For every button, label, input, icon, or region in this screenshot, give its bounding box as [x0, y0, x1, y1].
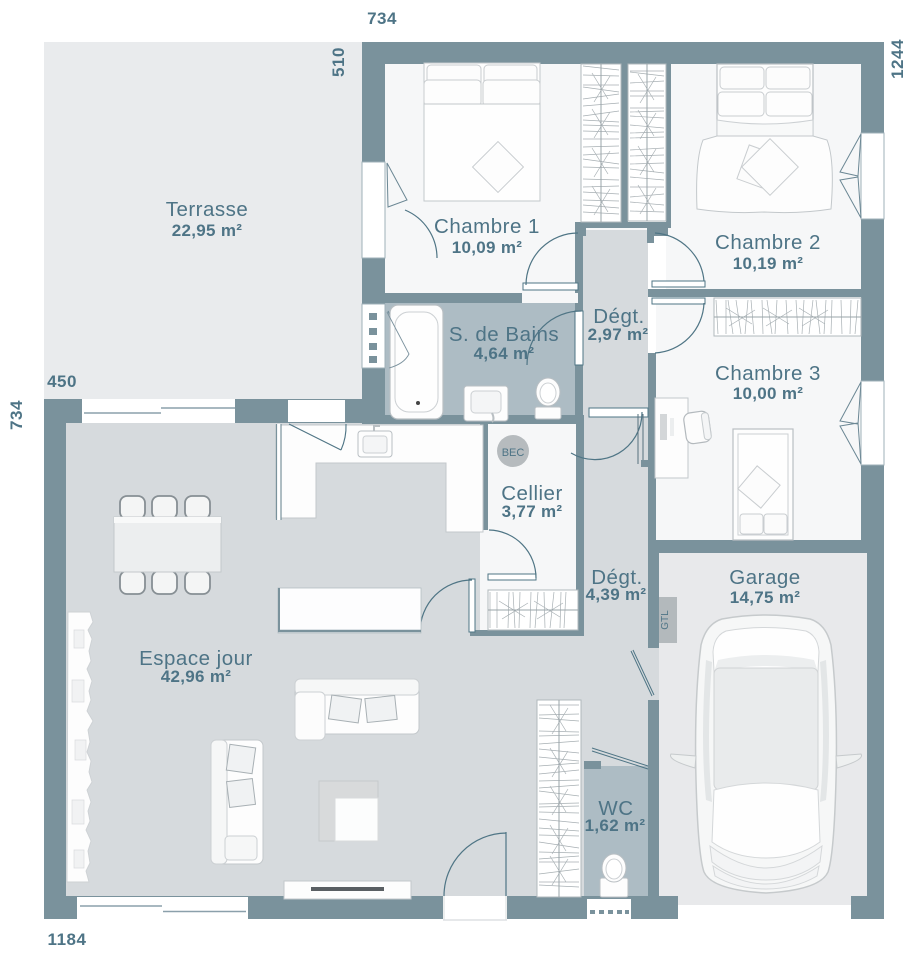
svg-text:BEC: BEC	[502, 447, 525, 459]
svg-text:1,62 m²: 1,62 m²	[585, 816, 646, 835]
svg-text:4,64 m²: 4,64 m²	[474, 344, 535, 363]
svg-text:1244: 1244	[888, 39, 907, 79]
svg-text:14,75 m²: 14,75 m²	[730, 588, 800, 607]
svg-text:734: 734	[7, 400, 26, 430]
svg-text:450: 450	[47, 372, 77, 391]
svg-text:3,77 m²: 3,77 m²	[502, 502, 563, 521]
svg-text:Chambre 1: Chambre 1	[434, 215, 540, 238]
svg-text:22,95 m²: 22,95 m²	[172, 221, 242, 240]
svg-text:42,96 m²: 42,96 m²	[161, 667, 231, 686]
svg-text:2,97 m²: 2,97 m²	[588, 325, 649, 344]
svg-text:Terrasse: Terrasse	[166, 198, 249, 221]
svg-text:4,39 m²: 4,39 m²	[586, 585, 647, 604]
svg-text:S. de Bains: S. de Bains	[449, 323, 559, 346]
svg-text:Chambre 3: Chambre 3	[715, 362, 821, 385]
svg-text:GTL: GTL	[660, 610, 671, 630]
svg-text:734: 734	[367, 9, 397, 28]
svg-text:10,19 m²: 10,19 m²	[733, 254, 803, 273]
svg-text:10,00 m²: 10,00 m²	[733, 384, 803, 403]
svg-text:1184: 1184	[48, 930, 87, 949]
svg-text:Garage: Garage	[729, 566, 800, 589]
svg-text:Chambre 2: Chambre 2	[715, 231, 821, 254]
svg-text:10,09 m²: 10,09 m²	[452, 238, 522, 257]
svg-text:510: 510	[329, 47, 348, 77]
